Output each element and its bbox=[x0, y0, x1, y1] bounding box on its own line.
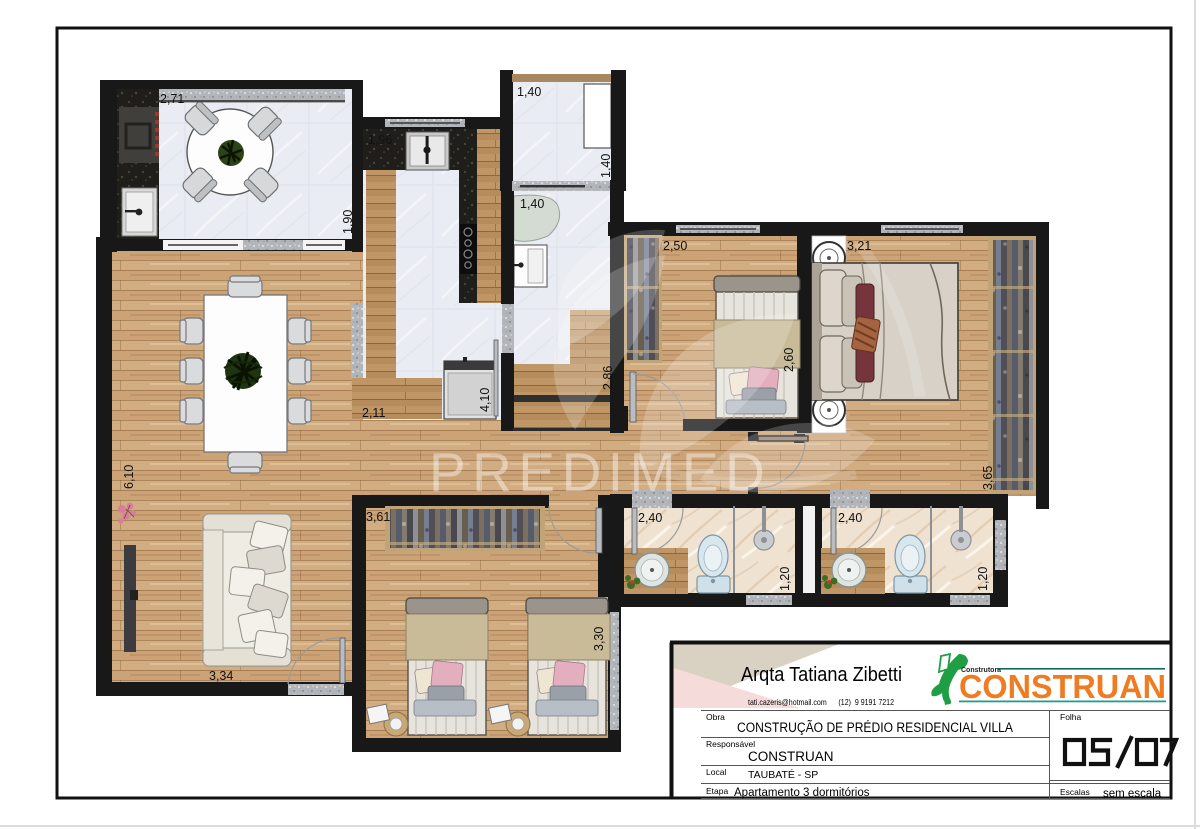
svg-text:Apartamento 3 dormitórios: Apartamento 3 dormitórios bbox=[734, 787, 870, 799]
svg-text:Folha: Folha bbox=[1060, 712, 1082, 722]
svg-text:2,40: 2,40 bbox=[638, 511, 662, 525]
svg-text:1,40: 1,40 bbox=[599, 154, 613, 178]
svg-text:3,61: 3,61 bbox=[366, 510, 390, 524]
svg-text:1,20: 1,20 bbox=[976, 567, 990, 591]
svg-text:2,86: 2,86 bbox=[601, 366, 615, 390]
svg-text:2,50: 2,50 bbox=[663, 239, 687, 253]
svg-text:sem escala: sem escala bbox=[1103, 788, 1162, 800]
svg-text:Local: Local bbox=[706, 767, 726, 777]
svg-text:Escalas: Escalas bbox=[1060, 787, 1090, 797]
svg-text:2,11: 2,11 bbox=[362, 406, 385, 420]
svg-text:3,21: 3,21 bbox=[847, 239, 871, 253]
svg-text:2,40: 2,40 bbox=[838, 511, 862, 525]
svg-text:Obra: Obra bbox=[706, 712, 725, 722]
svg-text:1,90: 1,90 bbox=[341, 210, 355, 234]
svg-text:TAUBATÉ - SP: TAUBATÉ - SP bbox=[748, 768, 818, 781]
svg-text:CONSTRUAN: CONSTRUAN bbox=[959, 668, 1166, 705]
svg-text:1,20: 1,20 bbox=[778, 567, 792, 591]
svg-text:CONSTRUÇÃO DE PRÉDIO RESIDENCI: CONSTRUÇÃO DE PRÉDIO RESIDENCIAL VILLA bbox=[737, 720, 1013, 735]
svg-text:3,30: 3,30 bbox=[592, 627, 606, 651]
svg-text:PREDIMED: PREDIMED bbox=[429, 441, 771, 503]
svg-text:4,10: 4,10 bbox=[478, 388, 492, 412]
svg-text:6,10: 6,10 bbox=[122, 465, 136, 489]
svg-text:CONSTRUAN: CONSTRUAN bbox=[748, 749, 834, 764]
svg-text:2,71: 2,71 bbox=[160, 92, 184, 106]
svg-text:3,65: 3,65 bbox=[981, 466, 995, 490]
svg-text:Responsável: Responsável bbox=[706, 739, 755, 749]
svg-text:Arqta Tatiana Zibetti: Arqta Tatiana Zibetti bbox=[741, 664, 902, 686]
svg-text:1,40: 1,40 bbox=[520, 197, 544, 211]
svg-text:Etapa: Etapa bbox=[706, 786, 728, 796]
svg-text:1,40: 1,40 bbox=[517, 85, 541, 99]
svg-text:2,60: 2,60 bbox=[782, 348, 796, 372]
svg-text:3,34: 3,34 bbox=[209, 669, 233, 683]
svg-text:1,96: 1,96 bbox=[368, 133, 392, 147]
svg-text:tati.cazeris@hotmail.com: tati.cazeris@hotmail.com (12) 9 9191 721… bbox=[748, 698, 894, 707]
